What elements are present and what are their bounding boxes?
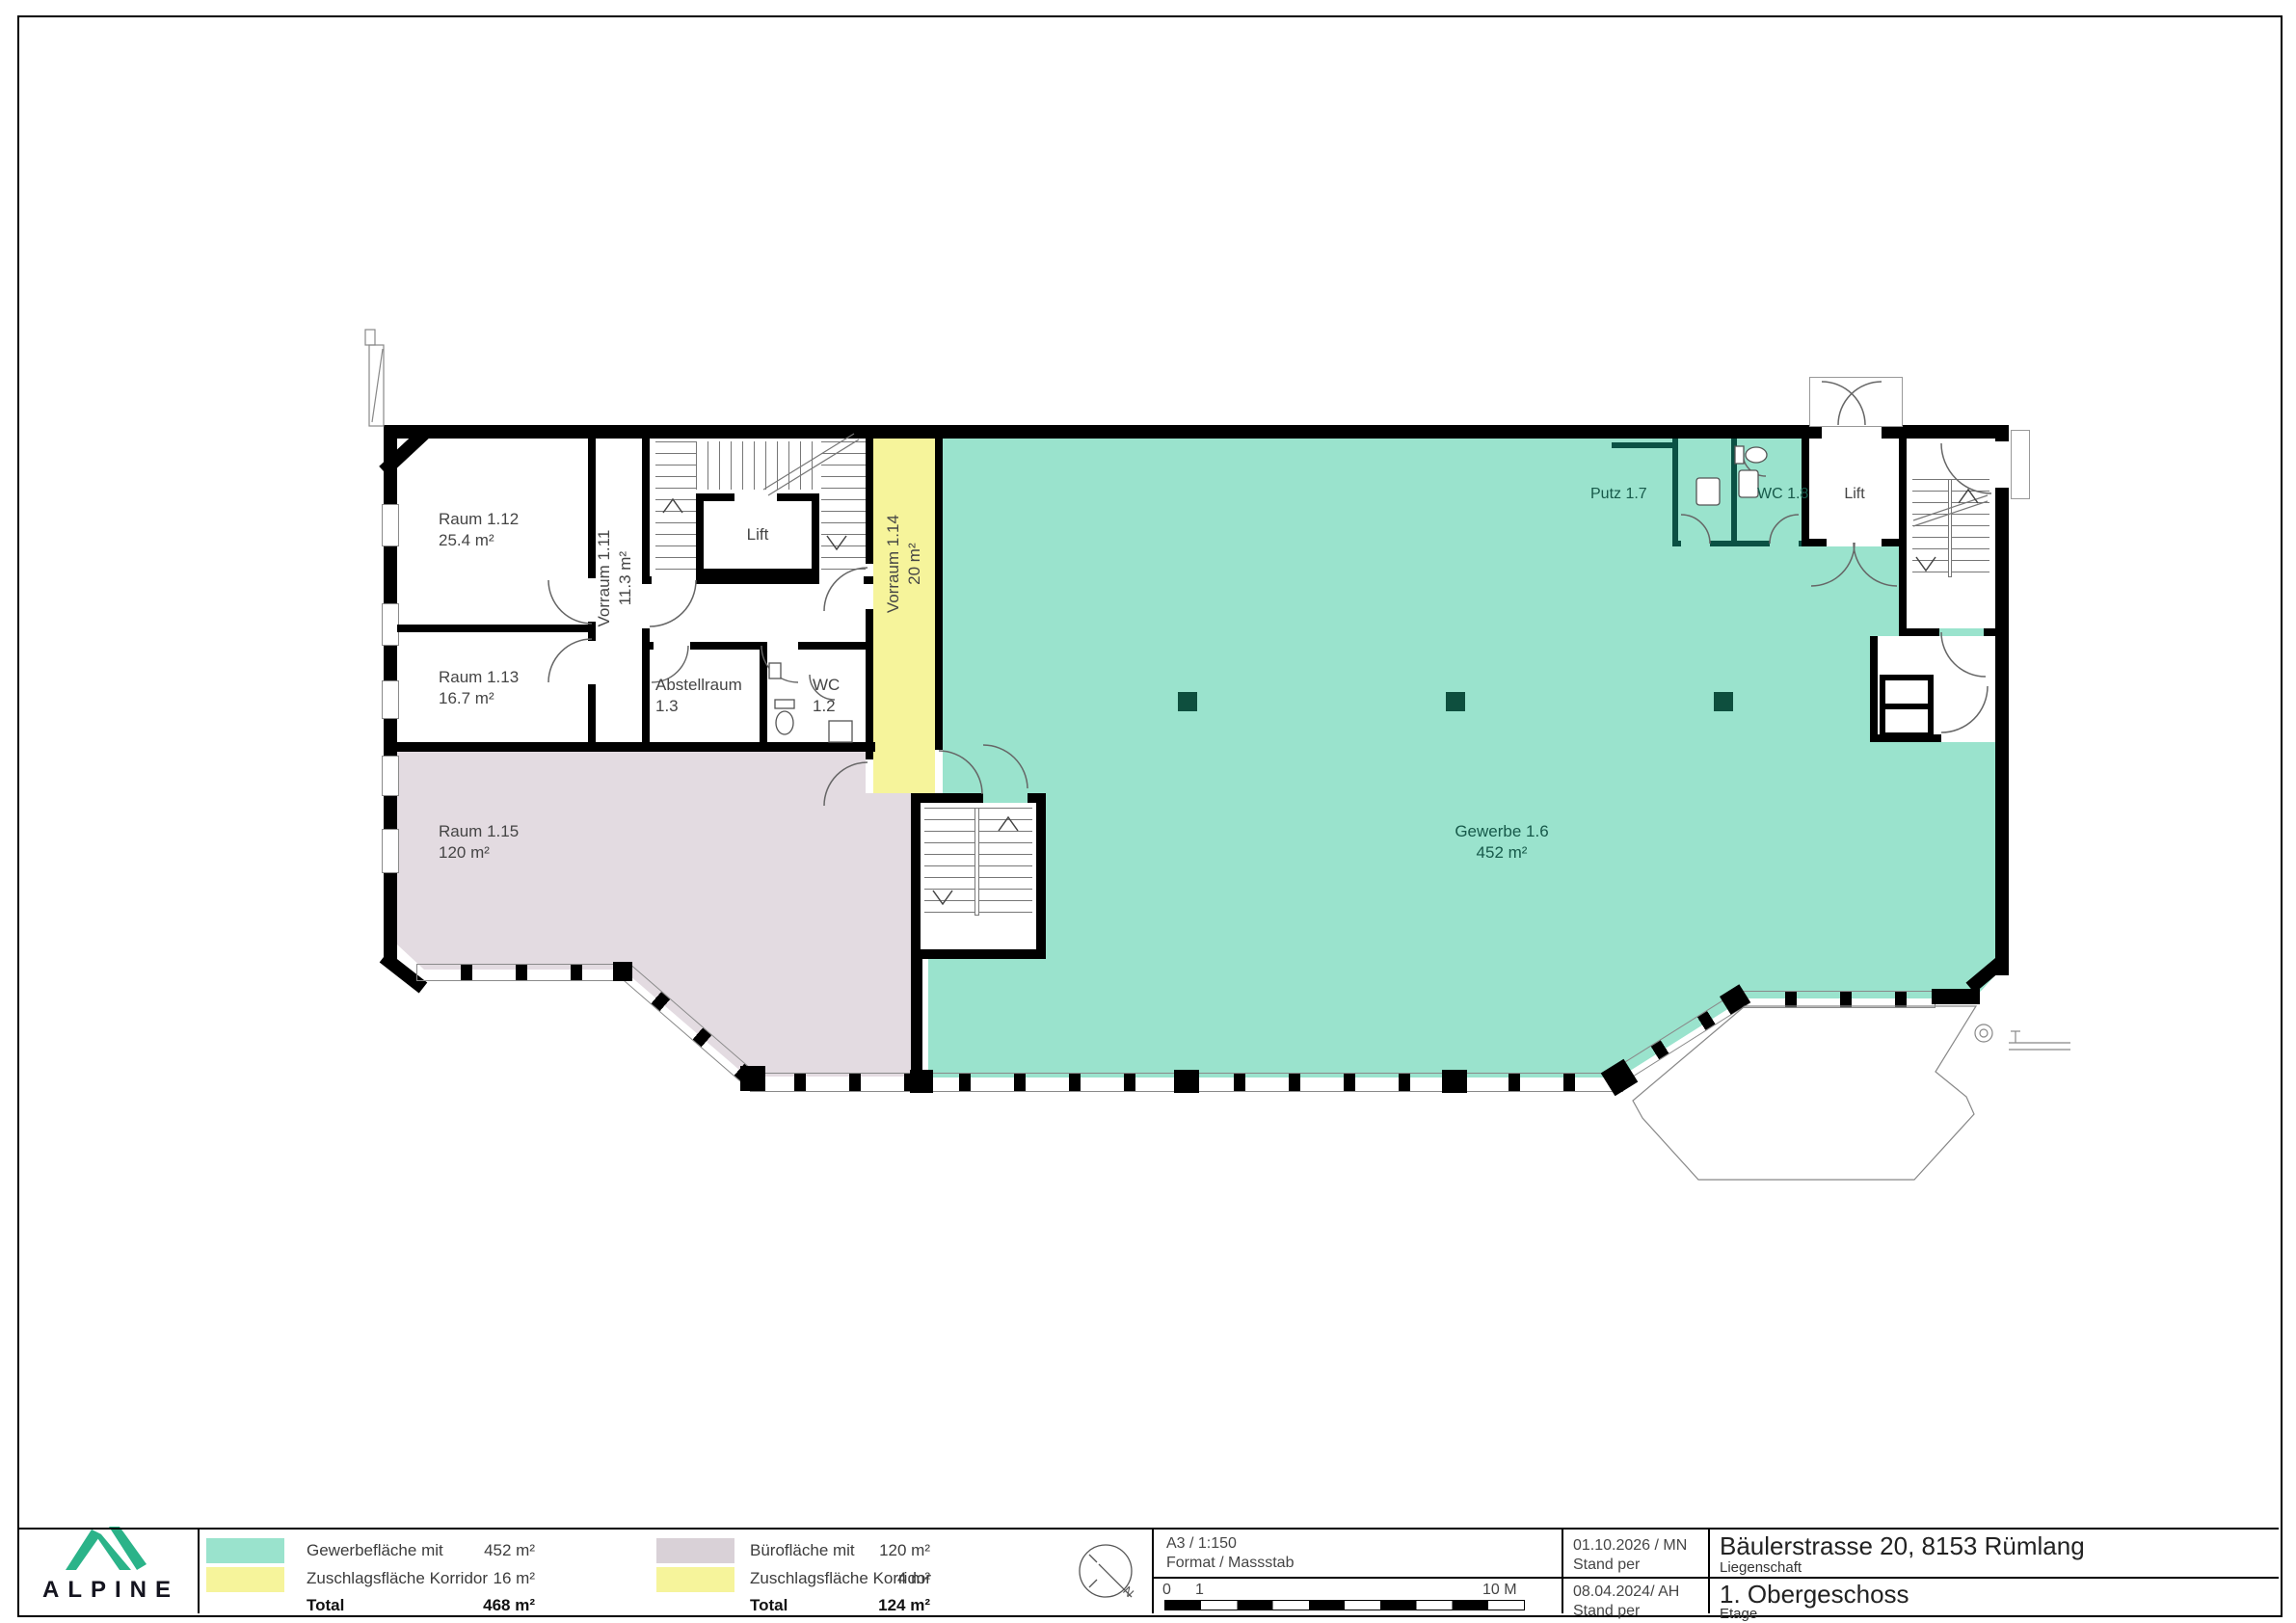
scalebar-zero: 0 (1162, 1581, 1171, 1600)
legend-swatch-buero (656, 1538, 734, 1563)
legend-swatch-gewerbe (206, 1538, 284, 1563)
legend-value: 16 m² (443, 1569, 535, 1588)
scalebar-end: 10 M (1482, 1581, 1517, 1600)
titleblock-divider (1152, 1528, 1154, 1613)
stand-bottom-label: Stand per (1573, 1602, 1640, 1621)
titleblock-divider (198, 1528, 200, 1613)
format-label: Format / Massstab (1166, 1554, 1294, 1573)
drawing-sheet: Raum 1.12 25.4 m² Raum 1.13 16.7 m² Vorr… (0, 0, 2296, 1623)
titleblock-divider (1708, 1528, 1710, 1613)
legend-label: Gewerbefläche mit (307, 1541, 443, 1560)
etage-value: 1. Obergeschoss (1720, 1581, 1909, 1609)
stand-top-label: Stand per (1573, 1556, 1640, 1575)
titleblock-top-line (17, 1528, 2279, 1530)
stand-bottom-value: 08.04.2024/ AH (1573, 1583, 1679, 1602)
stand-top-value: 01.10.2026 / MN (1573, 1536, 1687, 1556)
legend-total-value: 468 m² (443, 1596, 535, 1615)
legend-value: 452 m² (443, 1541, 535, 1560)
legend-total-value: 124 m² (839, 1596, 930, 1615)
titleblock-divider (1562, 1528, 1563, 1613)
legend-total-label: Total (307, 1596, 344, 1615)
legend-value: 120 m² (839, 1541, 930, 1560)
titleblock-row-line (1152, 1577, 2279, 1579)
title-block: ALPINE Gewerbefläche mit 452 m² Zuschlag… (0, 0, 2296, 1623)
liegenschaft-value: Bäulerstrasse 20, 8153 Rümlang (1720, 1532, 2085, 1560)
brand-wordmark: ALPINE (39, 1577, 183, 1604)
legend-value: 4 m² (839, 1569, 930, 1588)
scale-bar (1164, 1600, 1525, 1610)
legend-swatch-korridor (206, 1567, 284, 1592)
legend-swatch-korridor (656, 1567, 734, 1592)
scalebar-one: 1 (1195, 1581, 1204, 1600)
legend-total-label: Total (750, 1596, 788, 1615)
format-value: A3 / 1:150 (1166, 1534, 1237, 1554)
etage-label: Etage (1720, 1606, 1757, 1622)
liegenschaft-label: Liegenschaft (1720, 1559, 1802, 1576)
compass-north-label: N (1120, 1583, 1136, 1600)
